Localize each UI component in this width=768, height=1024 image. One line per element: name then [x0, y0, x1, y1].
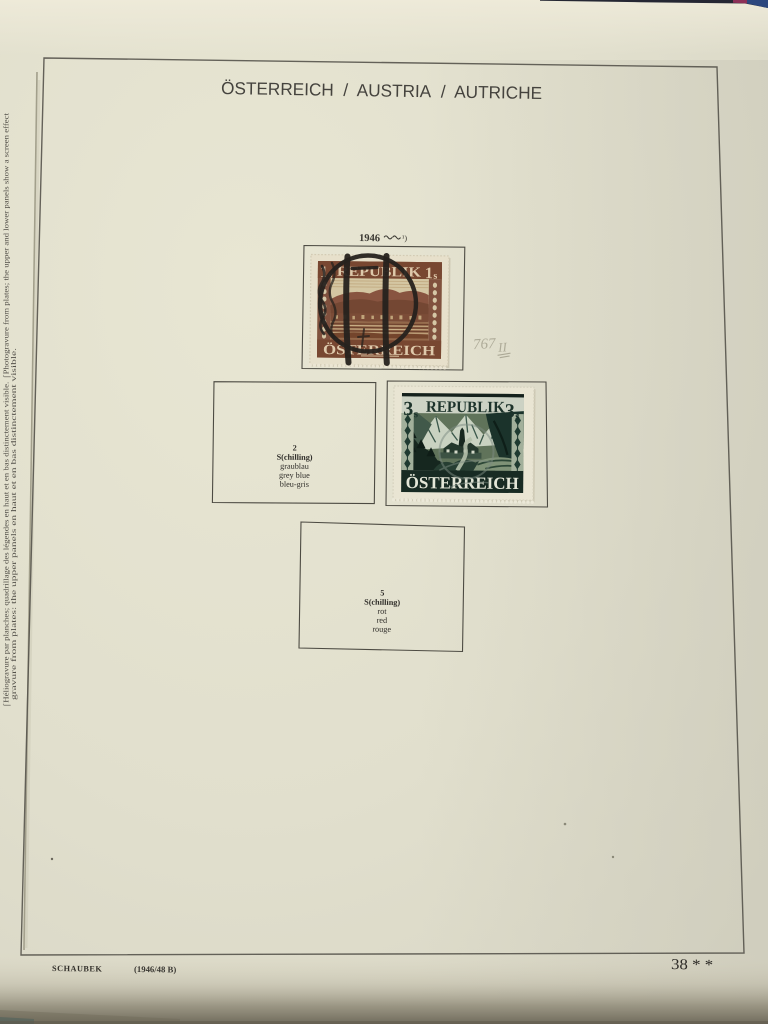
- svg-text:3: 3: [403, 398, 413, 420]
- svg-text:SCHAUBEK: SCHAUBEK: [52, 964, 103, 974]
- svg-text:S(chilling): S(chilling): [364, 597, 400, 607]
- svg-text:red: red: [377, 616, 388, 625]
- svg-text:bleu-gris: bleu-gris: [280, 480, 309, 489]
- svg-text:1946: 1946: [359, 233, 380, 244]
- svg-text:grey blue: grey blue: [279, 471, 310, 480]
- svg-text:38 * *: 38 * *: [671, 957, 713, 974]
- svg-text:ÖSTERREICH: ÖSTERREICH: [406, 473, 519, 493]
- svg-text:II: II: [497, 339, 508, 355]
- svg-text:5: 5: [380, 588, 384, 597]
- svg-text:3: 3: [505, 400, 515, 422]
- svg-text:S(chilling): S(chilling): [277, 453, 313, 462]
- svg-text:767: 767: [473, 336, 498, 353]
- svg-text:2: 2: [293, 443, 297, 452]
- svg-text:REPUBLIK: REPUBLIK: [426, 399, 506, 417]
- svg-text:rot: rot: [377, 607, 387, 616]
- svg-text:¹): ¹): [402, 234, 408, 243]
- svg-text:(1946/48 B): (1946/48 B): [134, 964, 176, 974]
- svg-text:rouge: rouge: [372, 625, 391, 634]
- svg-text:gravure from plates: the upper: gravure from plates: the upper panels en…: [11, 347, 18, 700]
- svg-text:graublau: graublau: [280, 462, 309, 471]
